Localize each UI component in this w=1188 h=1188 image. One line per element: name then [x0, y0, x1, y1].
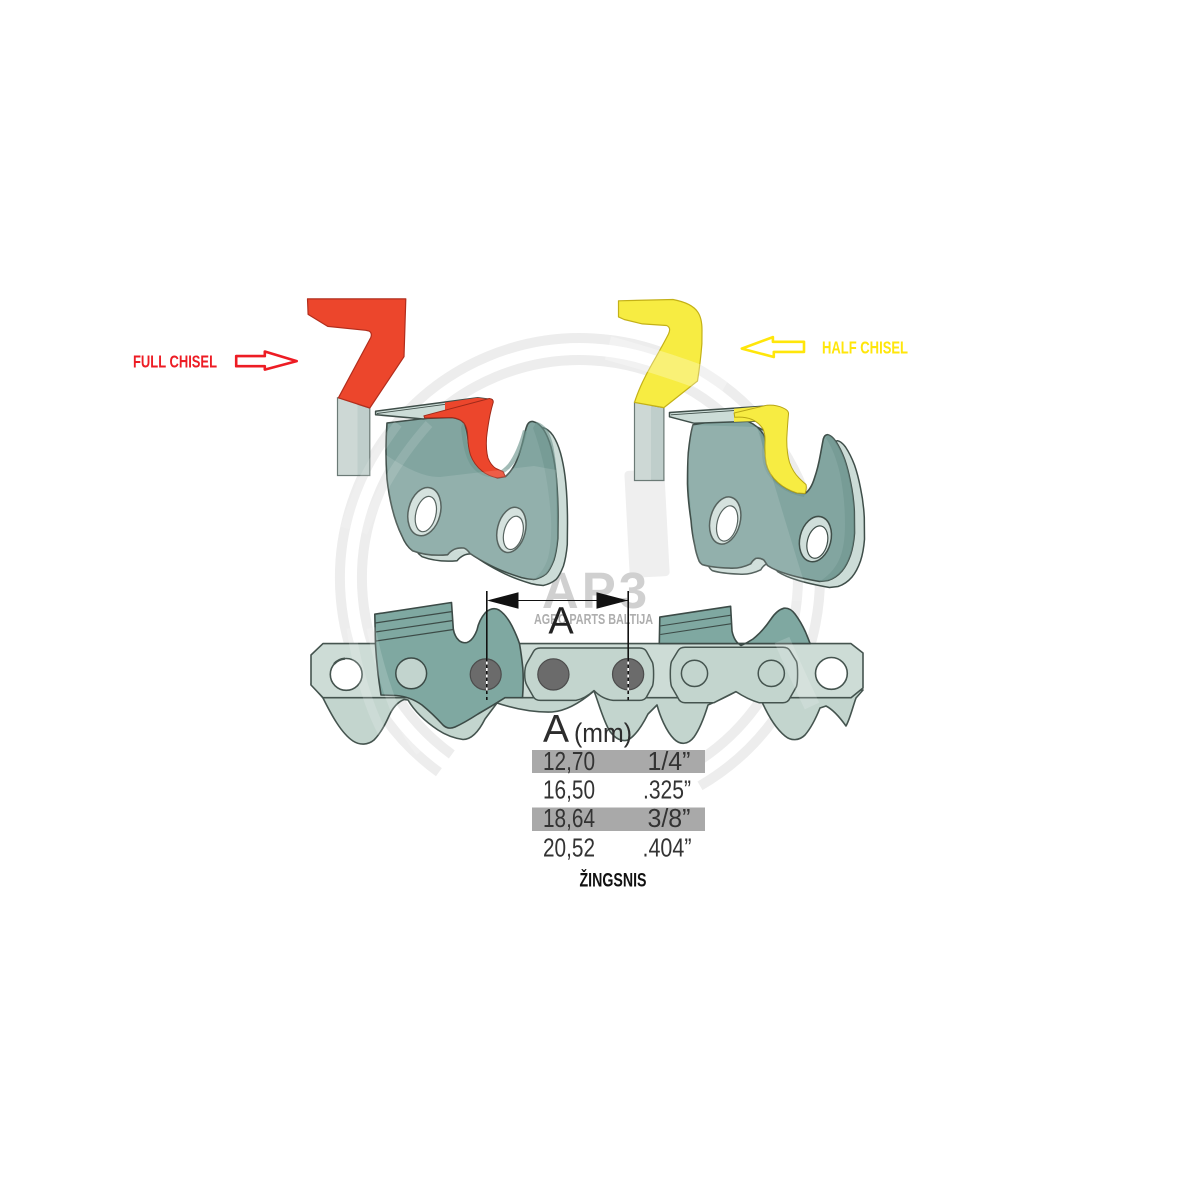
svg-text:.325”: .325” [643, 777, 691, 805]
svg-text:A: A [548, 601, 574, 643]
svg-text:FULL CHISEL: FULL CHISEL [133, 352, 217, 372]
svg-text:18,64: 18,64 [543, 805, 595, 833]
svg-text:1/4”: 1/4” [648, 748, 691, 776]
svg-text:16,50: 16,50 [543, 777, 595, 805]
svg-text:20,52: 20,52 [543, 835, 595, 863]
svg-text:12,70: 12,70 [543, 748, 595, 776]
svg-text:.404”: .404” [643, 835, 692, 863]
svg-text:ŽINGSNIS: ŽINGSNIS [580, 868, 647, 892]
svg-text:HALF CHISEL: HALF CHISEL [822, 338, 908, 358]
svg-text:3/8”: 3/8” [648, 805, 691, 833]
